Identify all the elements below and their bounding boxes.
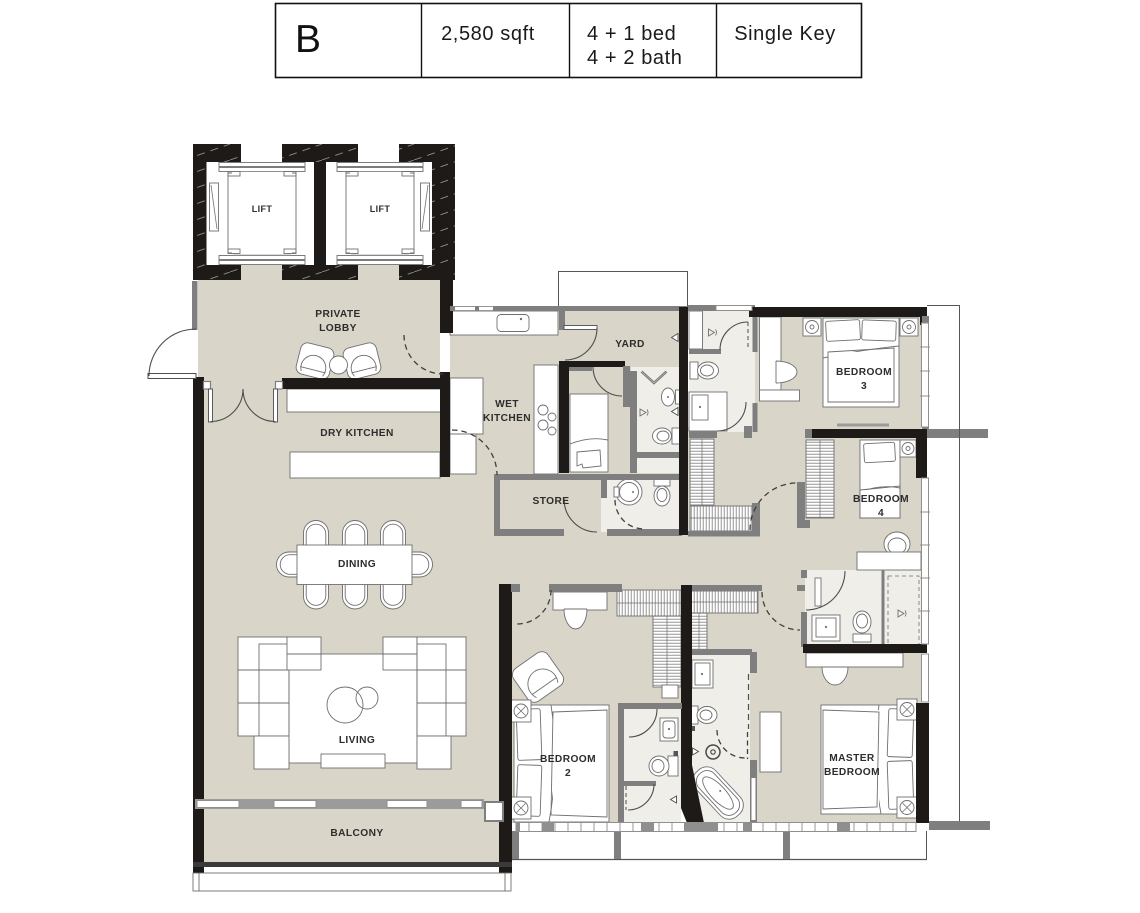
svg-text:2,580 sqft: 2,580 sqft [441,23,535,45]
svg-text:WET: WET [495,399,519,410]
svg-text:BEDROOM: BEDROOM [540,754,596,765]
svg-text:BEDROOM: BEDROOM [836,367,892,378]
svg-text:BEDROOM: BEDROOM [824,767,880,778]
svg-text:BALCONY: BALCONY [330,828,383,839]
svg-text:3: 3 [861,381,867,392]
svg-text:MASTER: MASTER [829,753,875,764]
svg-text:4 + 2 bath: 4 + 2 bath [587,47,683,69]
svg-text:LOBBY: LOBBY [319,323,357,334]
svg-text:YARD: YARD [615,339,645,350]
svg-text:KITCHEN: KITCHEN [483,413,531,424]
svg-text:DRY KITCHEN: DRY KITCHEN [320,428,393,439]
svg-text:4 + 1 bed: 4 + 1 bed [587,23,676,45]
svg-text:Single Key: Single Key [734,23,836,45]
svg-text:B: B [295,18,321,61]
svg-text:LIFT: LIFT [370,204,391,214]
svg-text:PRIVATE: PRIVATE [315,309,360,320]
svg-text:4: 4 [878,508,884,519]
svg-text:DINING: DINING [338,559,376,570]
svg-text:STORE: STORE [533,496,570,507]
svg-text:LIVING: LIVING [339,735,375,746]
svg-text:LIFT: LIFT [252,204,273,214]
svg-text:2: 2 [565,768,571,779]
svg-text:BEDROOM: BEDROOM [853,494,909,505]
